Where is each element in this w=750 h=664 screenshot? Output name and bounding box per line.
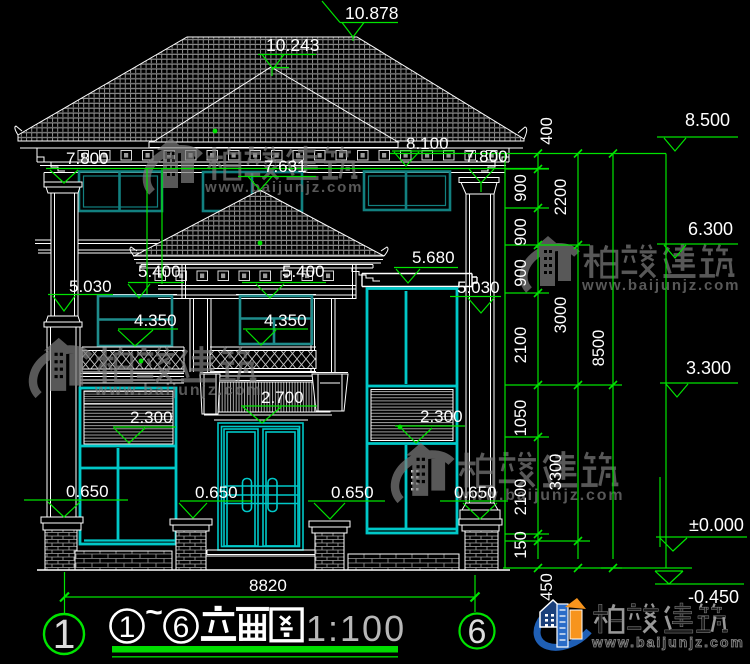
svg-text:2200: 2200 bbox=[552, 179, 570, 216]
svg-text:450: 450 bbox=[538, 573, 556, 601]
svg-text:1:100: 1:100 bbox=[306, 608, 406, 649]
svg-text:±0.000: ±0.000 bbox=[689, 515, 744, 535]
svg-text:8.100: 8.100 bbox=[406, 134, 449, 153]
svg-text:~: ~ bbox=[145, 596, 163, 629]
svg-text:10.878: 10.878 bbox=[345, 3, 399, 23]
svg-text:1: 1 bbox=[119, 611, 136, 644]
svg-text:8820: 8820 bbox=[249, 576, 287, 595]
svg-text:1050: 1050 bbox=[512, 400, 530, 437]
svg-text:5.030: 5.030 bbox=[457, 278, 500, 297]
svg-text:3000: 3000 bbox=[552, 297, 570, 334]
svg-text:6: 6 bbox=[173, 611, 190, 644]
svg-text:1: 1 bbox=[53, 611, 76, 657]
svg-text:900: 900 bbox=[512, 174, 530, 202]
svg-text:0.650: 0.650 bbox=[66, 482, 109, 501]
svg-text:900: 900 bbox=[512, 218, 530, 246]
svg-text:900: 900 bbox=[512, 259, 530, 287]
svg-text:0.650: 0.650 bbox=[331, 483, 374, 502]
svg-text:5.400: 5.400 bbox=[138, 262, 181, 281]
svg-text:2.300: 2.300 bbox=[420, 407, 463, 426]
svg-text:6.300: 6.300 bbox=[688, 219, 733, 239]
svg-text:6: 6 bbox=[468, 613, 487, 651]
svg-text:400: 400 bbox=[538, 117, 556, 145]
svg-text:3300: 3300 bbox=[547, 454, 565, 491]
svg-text:www.baijunjz.com: www.baijunjz.com bbox=[591, 634, 745, 650]
svg-text:2100: 2100 bbox=[512, 327, 530, 364]
svg-text:7.631: 7.631 bbox=[264, 157, 307, 176]
svg-text:5.030: 5.030 bbox=[69, 277, 112, 296]
svg-text:5.400: 5.400 bbox=[282, 262, 325, 281]
svg-text:2.700: 2.700 bbox=[261, 388, 304, 407]
svg-text:7.800: 7.800 bbox=[66, 149, 109, 168]
svg-text:0.650: 0.650 bbox=[454, 483, 497, 502]
svg-text:2100: 2100 bbox=[512, 479, 530, 516]
svg-text:10.243: 10.243 bbox=[266, 35, 320, 55]
svg-text:4.350: 4.350 bbox=[264, 311, 307, 330]
svg-text:150: 150 bbox=[512, 531, 530, 559]
svg-text:5.680: 5.680 bbox=[412, 248, 455, 267]
svg-text:3.300: 3.300 bbox=[686, 358, 731, 378]
svg-text:0.650: 0.650 bbox=[195, 483, 238, 502]
svg-text:4.350: 4.350 bbox=[134, 311, 177, 330]
svg-text:7.800: 7.800 bbox=[465, 147, 508, 166]
svg-text:2.300: 2.300 bbox=[130, 408, 173, 427]
svg-text:8500: 8500 bbox=[590, 330, 608, 367]
svg-text:8.500: 8.500 bbox=[685, 110, 730, 130]
